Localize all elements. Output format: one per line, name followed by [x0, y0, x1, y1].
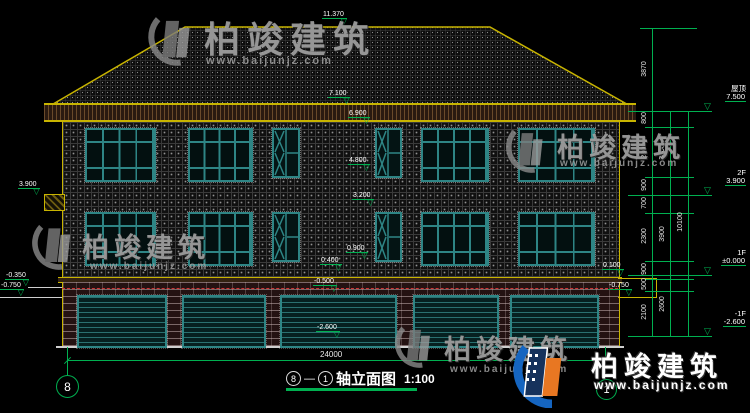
garage-door-1	[77, 295, 167, 348]
level-marker-grade-left-lower: -0.750▽	[0, 282, 24, 296]
level-marker-2f-sill: 4.800▽	[348, 157, 370, 171]
watermark-logo-top	[146, 13, 198, 67]
stair-window-2f-left	[272, 128, 300, 178]
window-2f-1	[85, 128, 156, 182]
level-marker-grade-right-upper: 0.100▽	[602, 262, 624, 276]
dim-inner-1: 3870	[641, 49, 649, 89]
watermark-url-top: www.baijunjz.com	[206, 55, 333, 67]
elevation-drawing-canvas: 11.370▽ 7.100▽ 6.900▽ 4.800▽ 3.200▽ 0.90…	[0, 0, 750, 413]
level-block-1f: 1F±0.000▽	[700, 249, 746, 274]
drawing-title: 8 — 1 轴立面图 1:100	[286, 368, 435, 389]
level-marker-2f-head: 6.900▽	[348, 110, 370, 124]
dim-outer-total: 10100	[677, 202, 685, 242]
stair-window-1f-right	[375, 212, 402, 262]
ext-line-b1-level	[628, 336, 712, 337]
watermark-url-left: www.baijunjz.com	[90, 261, 208, 272]
grid-bubble-8: 8	[56, 375, 79, 398]
stair-window-2f-right	[375, 128, 402, 178]
garage-door-3	[280, 295, 397, 348]
level-marker-left-canopy: 3.900▽	[18, 181, 40, 195]
watermark-logo-right	[504, 127, 550, 173]
ext-line-minor-2	[645, 177, 694, 178]
title-scale: 1:100	[404, 372, 435, 386]
dim-line-outer	[688, 111, 689, 336]
watermark-url-right: www.baijunjz.com	[560, 158, 678, 169]
dim-middle-3: 2600	[659, 284, 667, 324]
level-marker-1f-head: 3.200▽	[352, 192, 374, 206]
grade-line-left-lower	[0, 297, 62, 298]
level-marker-door-head: -0.500▽	[313, 278, 337, 292]
window-1f-4	[518, 212, 595, 266]
level-marker-plinth: 0.400▽	[320, 257, 342, 271]
dim-line-inner	[652, 28, 653, 336]
dim-inner-9: 2100	[641, 292, 649, 332]
level-block-roof: 屋顶7.500▽	[700, 85, 746, 110]
ext-line-minor-5	[645, 279, 694, 280]
level-marker-garage-floor: -2.600▽	[316, 324, 340, 338]
grade-line-left-upper	[28, 287, 62, 288]
garage-door-2	[182, 295, 266, 348]
level-block-2f: 2F3.900▽	[700, 169, 746, 194]
door-head-dashed-line	[62, 288, 618, 289]
level-marker-grade-right-lower: -0.750▽	[608, 282, 632, 296]
brand-url-color: www.baijunjz.com	[594, 378, 730, 392]
ext-line-minor-3	[645, 213, 694, 214]
eave-cornice-band	[44, 103, 636, 122]
level-marker-eave: 7.100▽	[328, 90, 350, 104]
window-1f-3	[421, 212, 489, 266]
watermark-logo-bottom	[392, 324, 438, 368]
brand-logo-color	[496, 342, 586, 408]
ext-line-ridge	[640, 28, 697, 29]
bottom-width-label: 24000	[320, 350, 342, 359]
level-block-b1: -1F-2.600▽	[700, 310, 746, 335]
watermark-logo-left	[30, 222, 78, 270]
ext-line-minor-6	[645, 291, 694, 292]
title-name: 轴立面图	[336, 368, 396, 389]
level-marker-1f-sill: 0.900▽	[346, 245, 368, 259]
title-separator: —	[304, 373, 315, 385]
window-2f-2	[188, 128, 253, 182]
ext-line-minor-4	[645, 261, 694, 262]
title-axis-start: 8	[286, 371, 301, 386]
title-axis-end: 1	[318, 371, 333, 386]
dim-middle-2: 3900	[659, 214, 667, 254]
left-canopy	[44, 194, 65, 211]
window-2f-3	[421, 128, 489, 182]
watermark-brand-left: 柏竣建筑	[82, 226, 210, 265]
right-step-side	[656, 278, 657, 298]
stair-window-1f-left	[272, 212, 300, 262]
title-underline	[286, 388, 417, 391]
